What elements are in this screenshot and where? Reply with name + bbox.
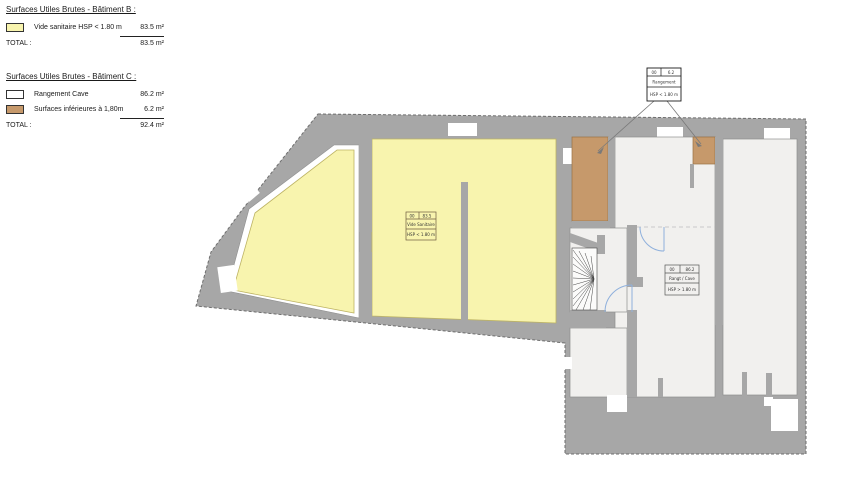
wall-partition: [570, 310, 606, 328]
wall-notch: [764, 397, 773, 406]
room-label-surfaces-basses: 00 6.2 Rangement HSP < 1.80 m: [647, 68, 681, 101]
wall-stub: [766, 373, 772, 397]
wall-partition: [627, 225, 637, 279]
svg-text:00: 00: [669, 267, 675, 272]
wall-partition: [715, 137, 723, 325]
svg-text:Rangt / Cave: Rangt / Cave: [669, 276, 695, 281]
wall-partition: [597, 235, 605, 254]
wall-notch: [607, 395, 627, 412]
svg-text:HSP < 1.80 m: HSP < 1.80 m: [407, 232, 435, 237]
staircase: [572, 248, 597, 310]
wall-notch: [563, 357, 572, 369]
wall-partition: [461, 182, 468, 321]
wall-partition: [608, 137, 615, 227]
svg-text:6.2: 6.2: [668, 70, 675, 75]
floorplan-page: { "legends": [ { "title": "Surfaces Util…: [0, 0, 850, 489]
wall-stub: [742, 372, 747, 397]
svg-text:Vide Sanitaire: Vide Sanitaire: [407, 222, 435, 227]
room-bottom-left: [570, 328, 627, 397]
svg-text:Rangement: Rangement: [652, 80, 676, 85]
wall-notch: [448, 123, 477, 136]
wall-partition: [359, 139, 372, 232]
wall-stub: [658, 378, 663, 397]
svg-text:HSP < 1.80 m: HSP < 1.80 m: [650, 92, 678, 97]
wall-partition: [627, 310, 637, 397]
svg-text:00: 00: [651, 70, 657, 75]
low-height-area-2: [693, 137, 715, 164]
wall-notch: [771, 399, 798, 431]
wall-notch: [764, 128, 790, 139]
wall-partition: [359, 252, 372, 318]
room-right: [723, 139, 797, 395]
wall-partition: [690, 164, 694, 188]
svg-text:HSP > 1.80 m: HSP > 1.80 m: [668, 287, 696, 292]
wall-partition: [572, 221, 610, 228]
svg-text:83.5: 83.5: [423, 214, 432, 219]
wall-partition: [716, 370, 722, 397]
svg-text:00: 00: [409, 214, 415, 219]
svg-text:86.2: 86.2: [686, 267, 695, 272]
floorplan-drawing: 00 83.5 Vide Sanitaire HSP < 1.80 m 00 6…: [0, 0, 850, 489]
wall-notch: [217, 265, 237, 293]
wall-notch: [563, 148, 572, 164]
